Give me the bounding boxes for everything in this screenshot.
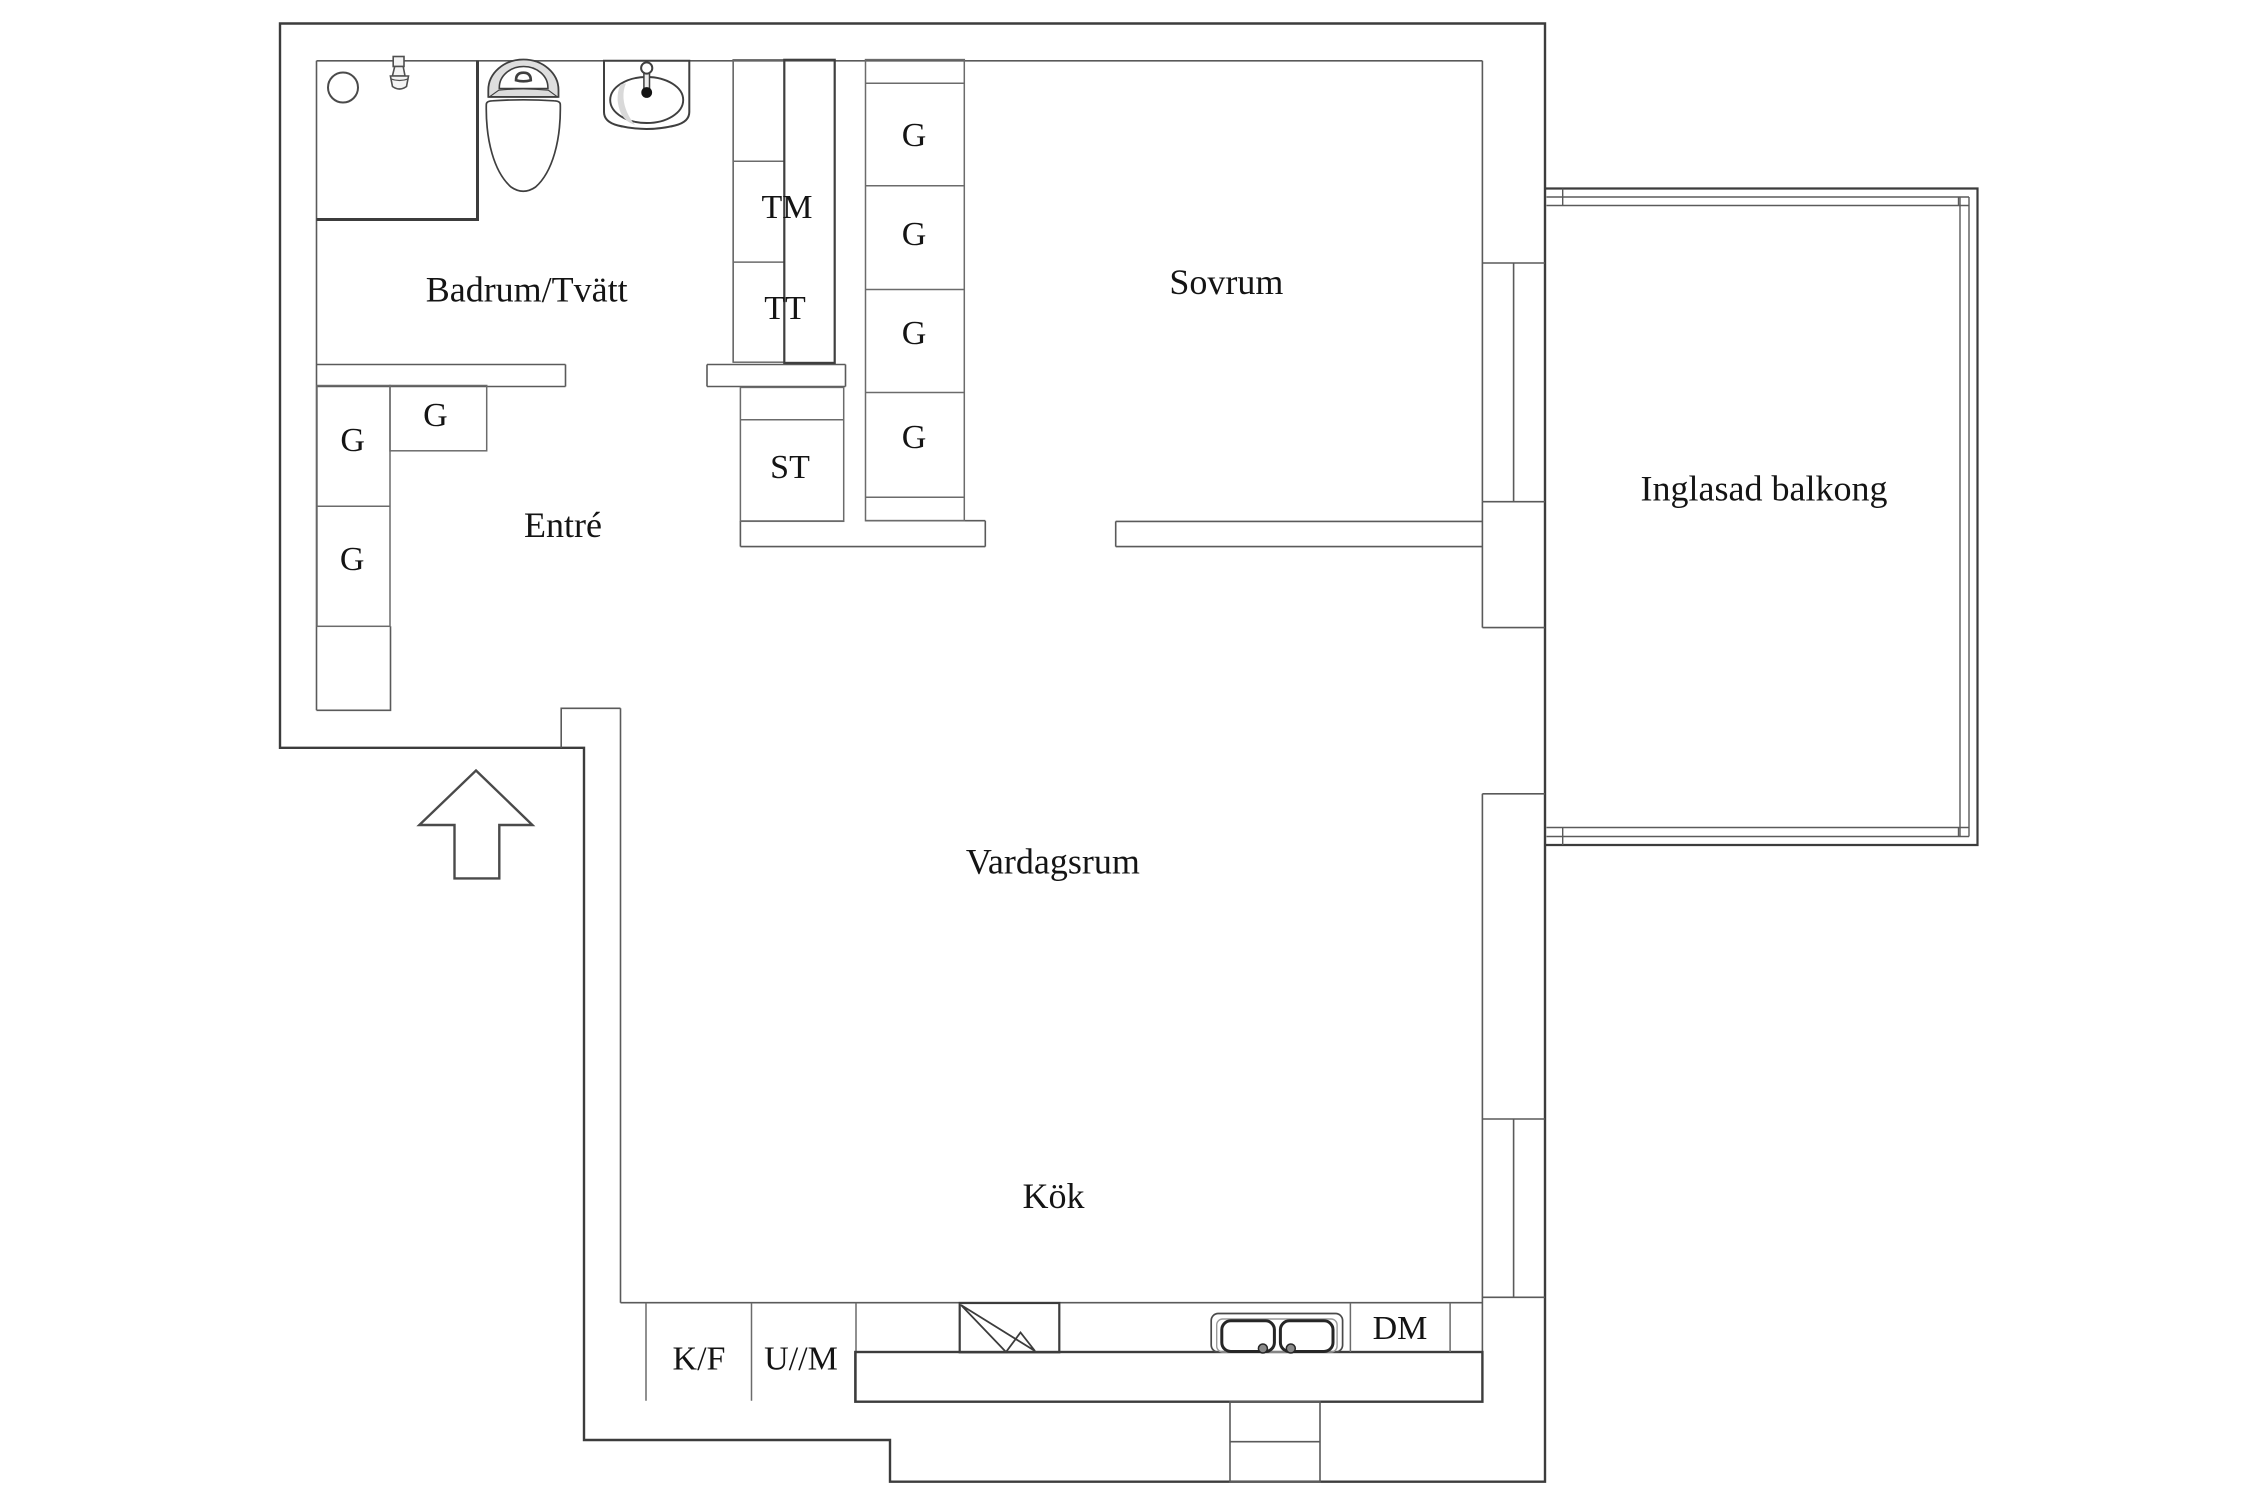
svg-text:G: G bbox=[423, 397, 448, 434]
svg-text:TT: TT bbox=[764, 290, 806, 327]
svg-text:TM: TM bbox=[762, 189, 813, 226]
svg-text:ST: ST bbox=[770, 449, 810, 486]
svg-text:G: G bbox=[902, 315, 927, 352]
svg-text:Sovrum: Sovrum bbox=[1169, 262, 1283, 302]
svg-text:Vardagsrum: Vardagsrum bbox=[966, 841, 1140, 881]
svg-text:G: G bbox=[902, 216, 927, 253]
svg-text:K/F: K/F bbox=[673, 1341, 726, 1378]
svg-text:U//M: U//M bbox=[764, 1341, 838, 1378]
svg-text:G: G bbox=[902, 419, 927, 456]
svg-text:DM: DM bbox=[1373, 1310, 1428, 1347]
svg-text:Entré: Entré bbox=[524, 505, 602, 545]
svg-text:Inglasad balkong: Inglasad balkong bbox=[1641, 468, 1888, 508]
svg-text:G: G bbox=[902, 117, 927, 154]
svg-text:G: G bbox=[340, 422, 365, 459]
svg-text:Kök: Kök bbox=[1023, 1176, 1085, 1216]
svg-text:Badrum/Tvätt: Badrum/Tvätt bbox=[426, 270, 628, 310]
svg-text:G: G bbox=[340, 541, 365, 578]
